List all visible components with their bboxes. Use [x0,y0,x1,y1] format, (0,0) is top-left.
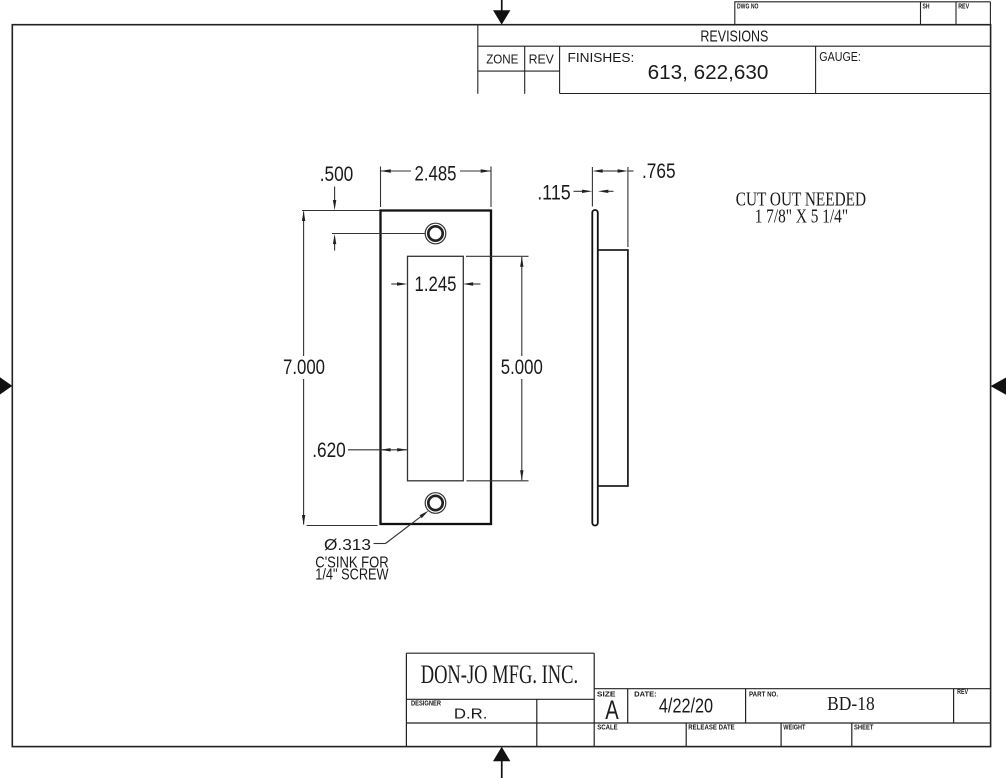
svg-text:DATE:: DATE: [634,691,657,698]
svg-text:REVISIONS: REVISIONS [700,29,768,46]
svg-text:.500: .500 [320,163,354,186]
svg-text:REV: REV [958,1,969,10]
svg-text:.765: .765 [642,160,676,183]
svg-text:SCALE: SCALE [597,725,618,732]
svg-text:REV: REV [529,51,554,66]
svg-text:DWG NO: DWG NO [737,1,759,10]
svg-text:1.245: 1.245 [415,273,457,296]
svg-text:BD-18: BD-18 [827,694,875,715]
svg-text:D.R.: D.R. [454,705,488,722]
svg-text:WEIGHT: WEIGHT [783,725,806,732]
svg-text:ZONE: ZONE [486,51,518,66]
svg-text:.620: .620 [312,439,346,462]
svg-text:2.485: 2.485 [415,162,457,185]
svg-text:DON-JO MFG. INC.: DON-JO MFG. INC. [421,659,578,689]
svg-text:SHEET: SHEET [854,725,874,732]
svg-text:.115: .115 [537,181,571,204]
svg-text:1 7/8" X 5 1/4": 1 7/8" X 5 1/4" [755,207,848,228]
svg-text:4/22/20: 4/22/20 [659,695,713,717]
svg-text:Ø.313: Ø.313 [324,537,371,554]
svg-text:A: A [605,695,619,725]
svg-text:FINISHES:: FINISHES: [568,51,635,65]
svg-text:RELEASE DATE: RELEASE DATE [688,725,735,732]
svg-text:DESIGNER: DESIGNER [411,701,441,708]
svg-text:SH: SH [923,1,930,10]
svg-text:PART NO.: PART NO. [749,691,778,698]
svg-text:GAUGE:: GAUGE: [819,50,861,64]
svg-text:5.000: 5.000 [501,356,543,379]
svg-text:613, 622,630: 613, 622,630 [648,62,769,84]
svg-text:REV: REV [957,689,968,696]
svg-text:1/4" SCREW: 1/4" SCREW [315,566,389,583]
svg-text:7.000: 7.000 [283,356,325,379]
